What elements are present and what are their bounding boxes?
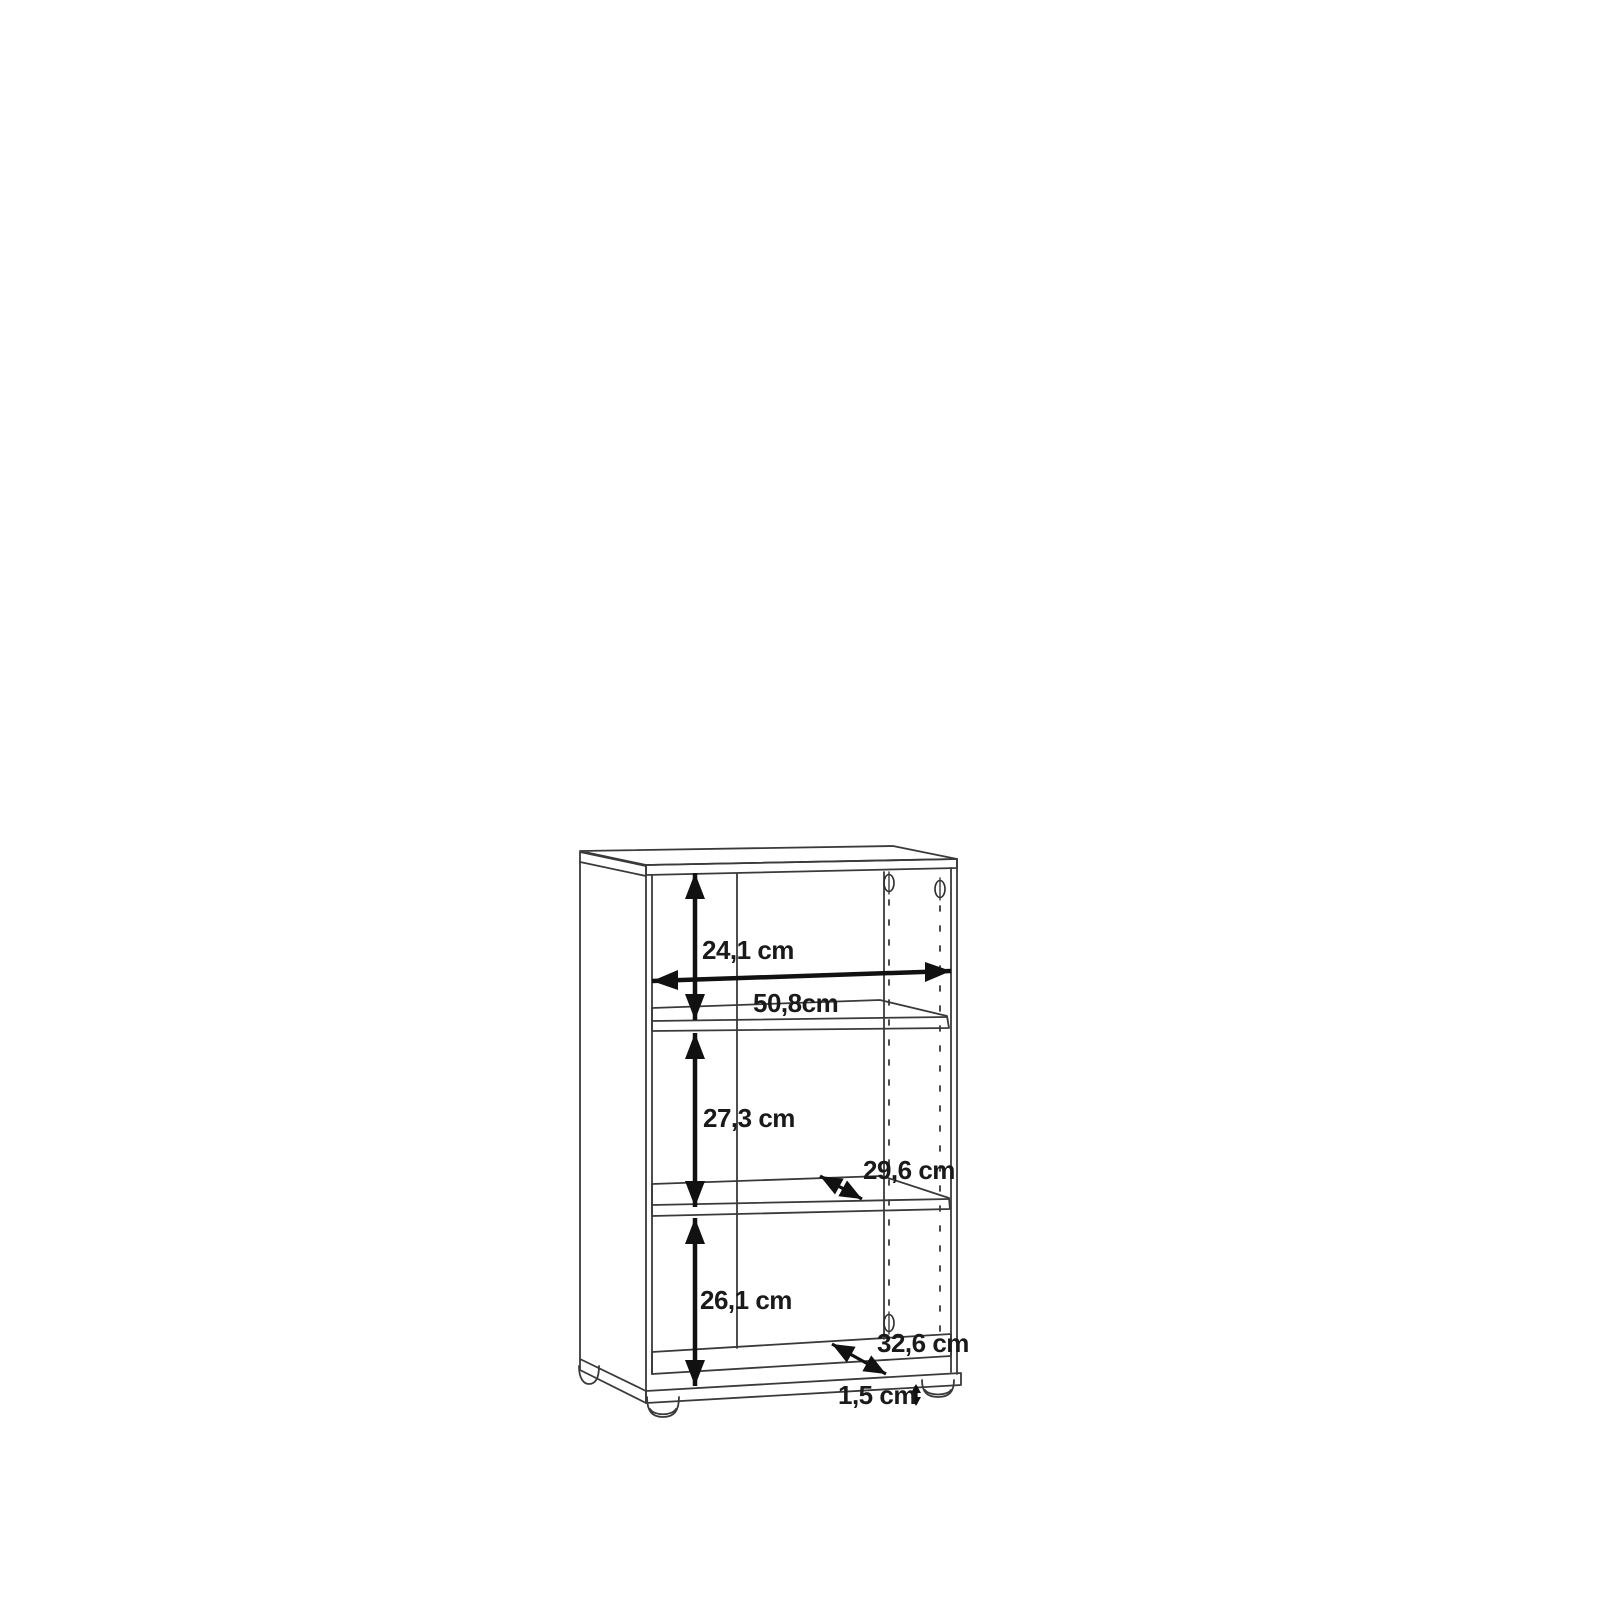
keyhole-icon [935, 878, 945, 900]
foot-front-left-base [650, 1409, 676, 1414]
dimension-label-bottom-section: 26,1 cm [700, 1285, 792, 1315]
dimension-label-width: 50,8cm [753, 988, 838, 1018]
dimension-label-foot-height: 1,5 cm [838, 1380, 916, 1410]
left-side-panel [580, 852, 652, 1403]
diagram-canvas: 24,1 cm 50,8cm 27,3 cm 29,6 cm 26,1 [0, 0, 1600, 1600]
dimension-arrow-middle-section [685, 1033, 705, 1207]
dimension-annotations: 24,1 cm 50,8cm 27,3 cm 29,6 cm 26,1 [652, 873, 969, 1410]
shelf-pin-columns [884, 872, 945, 1334]
foot-front-right-base [925, 1390, 951, 1395]
bookcase-dimension-drawing: 24,1 cm 50,8cm 27,3 cm 29,6 cm 26,1 [0, 0, 1600, 1600]
top-panel [580, 846, 957, 875]
dimension-arrow-shelf-depth [820, 1176, 862, 1199]
dimension-label-top-section: 24,1 cm [702, 935, 794, 965]
dimension-label-middle-section: 27,3 cm [703, 1103, 795, 1133]
dimension-label-base-depth: 32,6 cm [877, 1328, 969, 1358]
right-side-panel [951, 859, 957, 1374]
keyhole-icon [884, 872, 894, 894]
dimension-label-shelf-depth: 29,6 cm [863, 1155, 955, 1185]
